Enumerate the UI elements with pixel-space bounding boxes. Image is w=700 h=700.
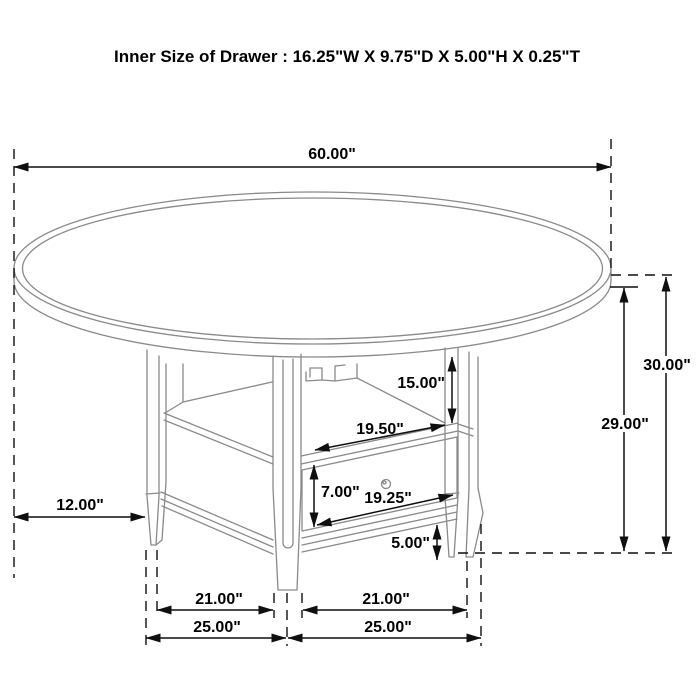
drawer-inner-size-title: Inner Size of Drawer : 16.25"W X 9.75"D … [114,47,581,66]
dim-drawer-height-label: 7.00" [321,484,360,501]
tabletop-outer-edge [14,192,611,344]
dim-left-outer-span-label: 25.00" [193,619,241,636]
dim-overhang-label: 12.00" [56,497,104,514]
dim-clearance-label: 5.00" [391,535,430,552]
table-dimension-drawing: Inner Size of Drawer : 16.25"W X 9.75"D … [0,0,700,700]
dim-right-inner-span-label: 21.00" [362,591,410,608]
left-face-shelves [161,364,273,554]
round-table-drawing [14,192,611,590]
dim-compartment-height-label: 15.00" [397,375,445,392]
dimension-annotations: 60.00" 30.00" 29.00" 15.00" 19.50" 7.00"… [14,146,695,638]
dimension-diagram: Inner Size of Drawer : 16.25"W X 9.75"D … [0,0,700,700]
dim-compartment-width-label: 19.50" [356,421,404,438]
drawer-knob-highlight [383,481,386,484]
dim-total-height-label: 30.00" [643,357,691,374]
tabletop-inner-edge [23,198,603,339]
dim-left-inner-span-label: 21.00" [195,591,243,608]
extension-lines [14,139,678,646]
dim-diameter-label: 60.00" [308,146,356,163]
dim-underside-height-label: 29.00" [601,416,649,433]
dim-right-outer-span-label: 25.00" [364,619,412,636]
dim-drawer-width-label: 19.25" [364,490,412,507]
